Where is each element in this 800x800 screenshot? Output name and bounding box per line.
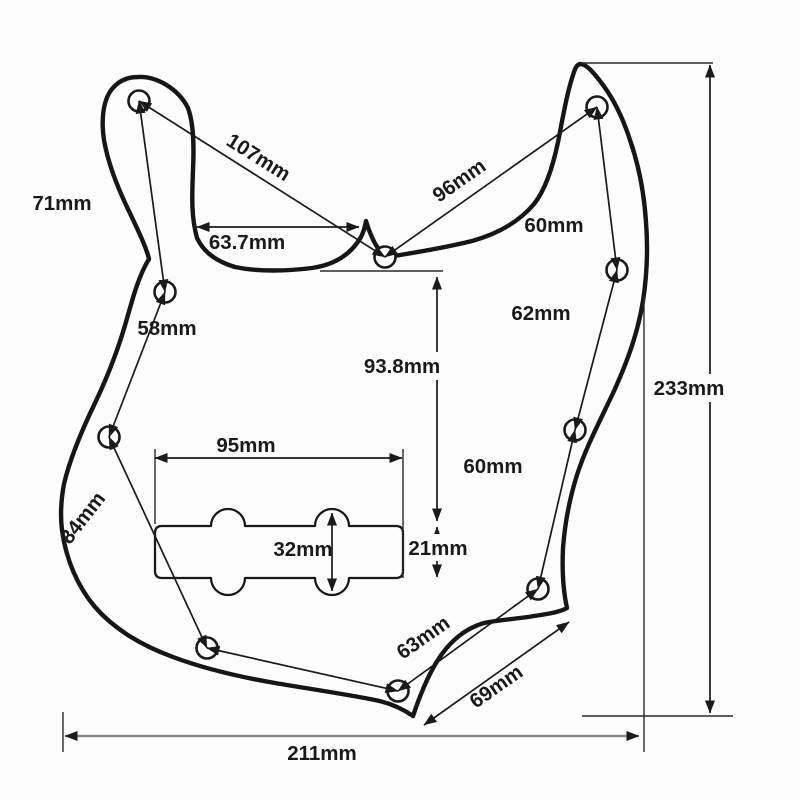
- pickguard-dimension-diagram: 107mm 96mm 71mm 63.7mm 58mm 60mm 62mm 93…: [0, 0, 800, 800]
- dim-label-63-7mm: 63.7mm: [209, 231, 285, 254]
- dim-label-71mm: 71mm: [32, 192, 91, 215]
- dim-label-62mm: 62mm: [511, 302, 570, 325]
- dim-label-60mm-lower: 60mm: [463, 455, 522, 478]
- diagram-canvas: 107mm 96mm 71mm 63.7mm 58mm 60mm 62mm 93…: [0, 0, 800, 800]
- dim-label-69mm: 69mm: [465, 660, 527, 713]
- pickguard-outline: [61, 64, 647, 716]
- dim-label-32mm: 32mm: [273, 538, 332, 561]
- dim-label-95mm: 95mm: [216, 434, 275, 457]
- dim-label-60mm-upper: 60mm: [524, 214, 583, 237]
- dim-label-233mm: 233mm: [654, 377, 725, 400]
- dim-label-58mm: 58mm: [137, 317, 196, 340]
- dim-label-93-8mm: 93.8mm: [364, 355, 440, 378]
- dim-label-211mm: 211mm: [287, 742, 357, 765]
- dim-label-96mm: 96mm: [428, 154, 490, 207]
- dim-label-21mm: 21mm: [408, 537, 467, 560]
